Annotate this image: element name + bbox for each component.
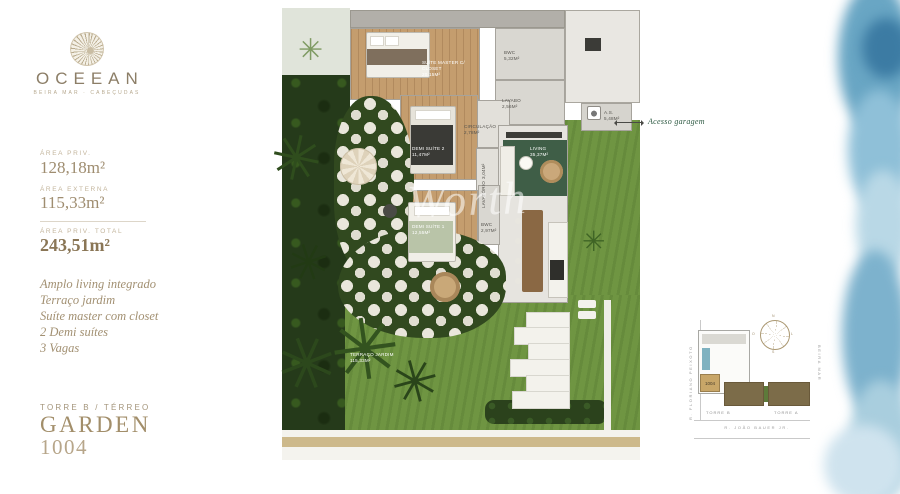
area-private-value: 128,18m²	[40, 158, 105, 178]
room-label-as: A.S. 5,48m²	[604, 110, 630, 122]
street-left-label: R. FLORIANO PEIXOTO	[688, 330, 693, 420]
coffee-table	[519, 156, 533, 170]
blanket	[411, 125, 453, 165]
area-private-label: ÁREA PRIV.	[40, 150, 92, 157]
rattan-chair	[540, 160, 563, 183]
wing-green-detail	[764, 386, 768, 402]
wing-b-footprint	[724, 382, 764, 406]
area-external-label: ÁREA EXTERNA	[40, 186, 109, 193]
garden-table	[383, 204, 397, 218]
sun-lounger	[578, 311, 596, 319]
palm-icon: ✳	[582, 228, 605, 256]
unit-1004-highlight: 1004	[700, 374, 720, 392]
feature-item: 3 Vagas	[40, 340, 230, 356]
room-label-lavabo: LAVABO 2,56m²	[502, 98, 546, 110]
sidewalk-band	[282, 437, 640, 447]
unit-tower-floor: TORRE B / TÉRREO	[40, 403, 150, 412]
pool-detail	[702, 348, 710, 370]
street-line-bottom-2	[694, 438, 810, 439]
garage-common-area	[565, 10, 640, 103]
parasol	[340, 148, 377, 185]
room-label-bwc-master: BWC 5,32m²	[504, 50, 544, 62]
area-external-value: 115,33m²	[40, 193, 104, 213]
pillow	[385, 36, 399, 46]
area-divider	[40, 221, 146, 222]
paving-step	[512, 391, 570, 409]
feature-item: Amplo living integrado	[40, 276, 230, 292]
watermark: Worth	[406, 171, 529, 228]
dining-chair	[515, 238, 521, 244]
tv-console	[506, 132, 562, 138]
garage-arrow-icon	[616, 122, 642, 123]
watercolor-strip	[810, 0, 900, 494]
compass-s: S	[772, 350, 774, 354]
compass-w: O	[752, 332, 755, 336]
room-label-living: LIVING 35,37m²	[530, 146, 566, 158]
brand-tagline: BEIRA MAR · CABEÇUDAS	[30, 90, 144, 96]
washer-icon	[587, 106, 601, 120]
shell-logo-icon	[70, 32, 104, 66]
street-line-bottom	[694, 420, 810, 421]
brochure-page: OCEEAN BEIRA MAR · CABEÇUDAS ÁREA PRIV. …	[0, 0, 900, 494]
dining-chair	[515, 258, 521, 264]
siteplan: N S O L R. FLORIANO PEIXOTO R. JOÃO BAUE…	[688, 312, 820, 450]
pillow	[370, 36, 384, 46]
sun-lounger	[578, 300, 596, 308]
unit-number: 1004	[40, 435, 88, 460]
tower-b-roof-detail	[702, 334, 746, 344]
compass-n: N	[772, 314, 775, 318]
garage-mat	[585, 38, 601, 51]
brand-name: OCEEAN	[36, 69, 138, 89]
bed-demi-2	[410, 106, 456, 174]
feature-item: Terraço jardim	[40, 292, 230, 308]
tower-b-label: TORRE B	[706, 410, 731, 415]
room-label-terraco-jardim: TERRAÇO JARDIM 115,33m²	[350, 352, 410, 364]
watercolor-blob	[824, 425, 900, 494]
pillow	[415, 110, 451, 120]
palm-icon: ✳	[298, 36, 323, 66]
floorplan: ✳ ✳ ✳ ✳ ✳ ✳ ✳	[282, 8, 640, 460]
lawn-right	[565, 120, 640, 310]
compass-e: L	[791, 332, 793, 336]
feature-item: 2 Demi suítes	[40, 324, 230, 340]
wing-a-footprint	[768, 382, 810, 406]
lounge-chair	[430, 272, 460, 302]
room-label-demi-suite-2: DEMI SUÍTE 2 11,47m²	[412, 146, 466, 158]
room-label-circulacao: CIRCULAÇÃO 2,78m²	[464, 124, 510, 136]
feature-item: Suíte master com closet	[40, 308, 230, 324]
feature-list: Amplo living integrado Terraço jardim Su…	[40, 276, 230, 356]
boundary-wall-top	[350, 10, 565, 28]
compass-icon	[760, 320, 790, 350]
blanket	[367, 49, 427, 65]
bed-master	[366, 32, 430, 78]
garden-wall	[604, 300, 611, 430]
room-label-suite-master: SUÍTE MASTER C/ CLOSET 20,15m²	[422, 60, 480, 78]
area-total-value: 243,51m²	[40, 235, 110, 256]
dining-chair	[515, 278, 521, 284]
tower-a-label: TORRE A	[774, 410, 799, 415]
kitchen-oven	[550, 260, 564, 280]
area-total-label: ÁREA PRIV. TOTAL	[40, 228, 123, 235]
garage-annotation: Acesso garagem	[648, 117, 705, 126]
unit-1004-label: 1004	[705, 381, 715, 386]
street-bottom-label: R. JOÃO BAUER JR.	[712, 425, 802, 430]
